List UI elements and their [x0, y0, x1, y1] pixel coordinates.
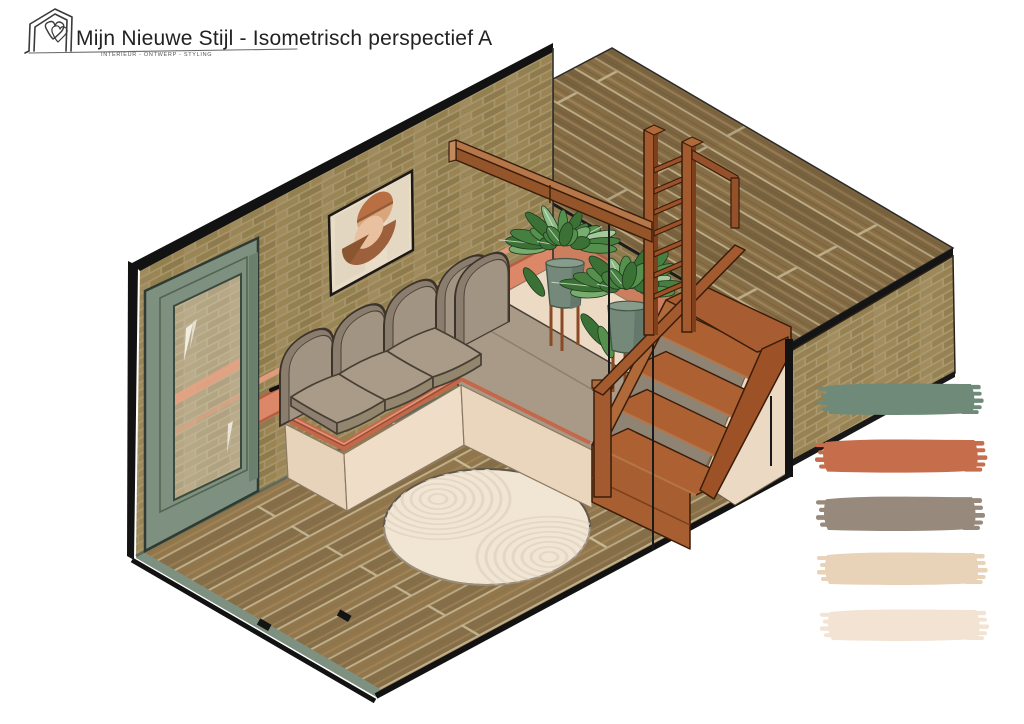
svg-text:INTERIEUR - ONTWERP - STYL: INTERIEUR - ONTWERP - STYLING	[101, 52, 212, 58]
svg-text:Mijn Nieuwe Stijl - Isometrisc: Mijn Nieuwe Stijl - Isometrisch perspect…	[76, 27, 492, 50]
